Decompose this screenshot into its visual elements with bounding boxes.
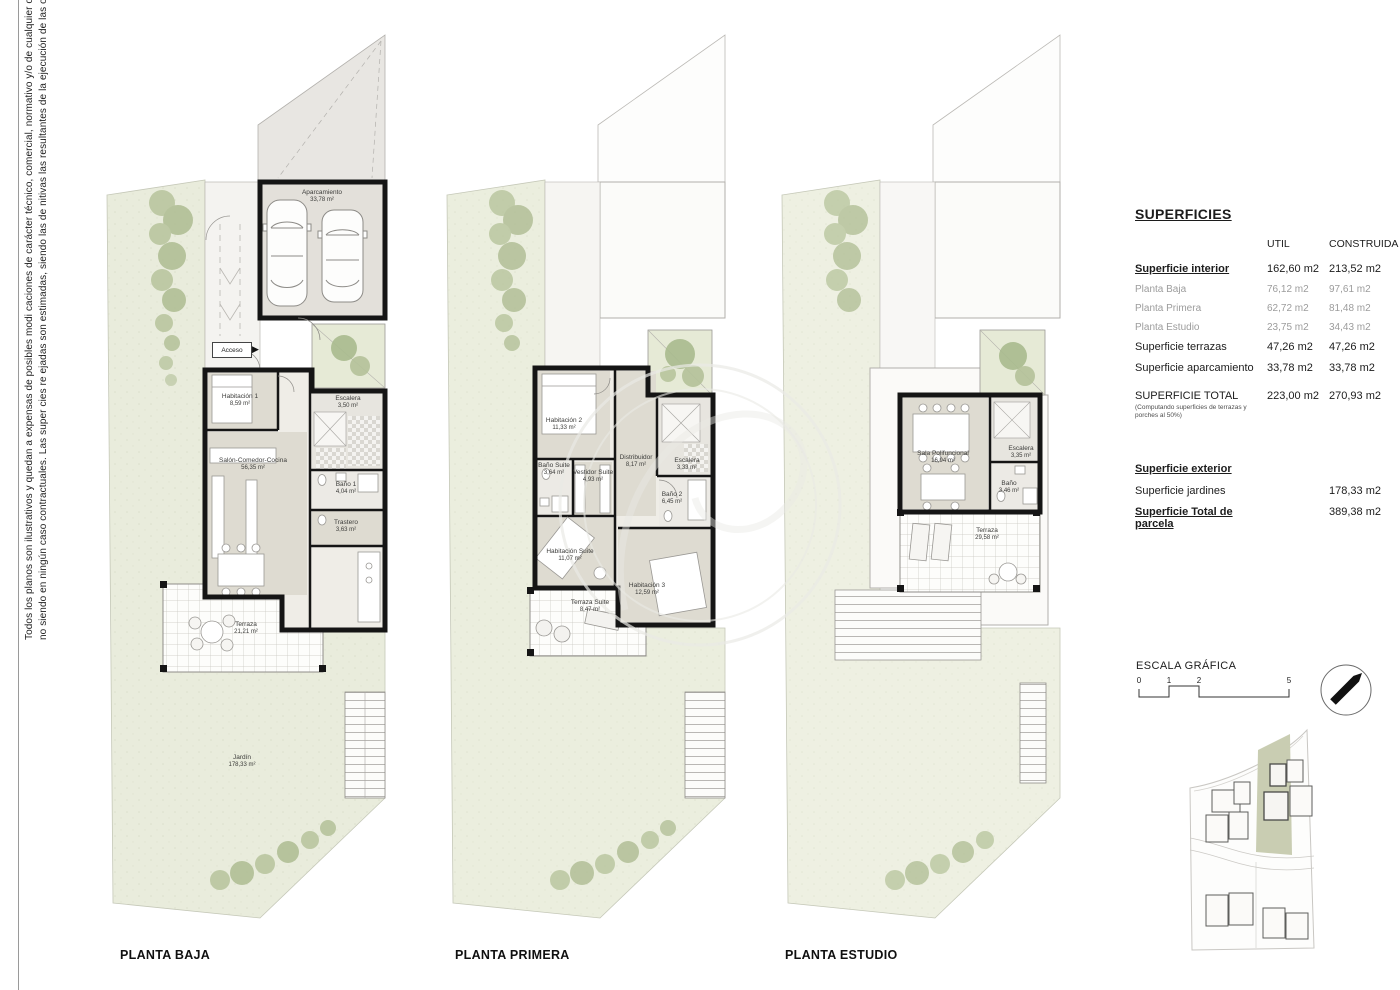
exterior-stairs <box>345 692 385 798</box>
car-2 <box>318 210 367 302</box>
row-superficie-aparcamiento: Superficie aparcamiento 33,78 m2 33,78 m… <box>1135 362 1391 374</box>
graphic-scale-title: ESCALA GRÁFICA <box>1136 660 1306 672</box>
watermark-logo <box>545 360 855 660</box>
scale-tick-5: 5 <box>1287 676 1292 685</box>
disclaimer-line-2: no siendo en ningún caso contractuales. … <box>37 95 51 640</box>
table-header-row: UTIL CONSTRUIDA <box>1135 238 1391 250</box>
car-1 <box>263 200 311 306</box>
floorplan-planta-baja: Aparcamiento33,78 m² Acceso ▶ Habitación… <box>100 28 390 928</box>
sheet-left-border <box>18 0 19 990</box>
acceso-arrow-icon: ▶ <box>252 342 259 356</box>
studio-floor <box>900 395 1040 512</box>
drawing-sheet: Todos los planos son ilustrativos y qued… <box>0 0 1400 990</box>
site-location-plan <box>1186 720 1336 958</box>
row-planta-baja: Planta Baja 76,12 m2 97,61 m2 <box>1135 284 1391 295</box>
acceso-label: Acceso <box>212 342 252 358</box>
deck-slats <box>835 590 981 660</box>
superficies-title: SUPERFICIES <box>1135 206 1391 222</box>
total-label: SUPERFICIE TOTAL <box>1135 390 1238 402</box>
plan-title-planta-baja: PLANTA BAJA <box>120 948 210 962</box>
patio-tree <box>312 324 385 388</box>
column-header-util: UTIL <box>1267 238 1329 250</box>
scale-bar: 0 1 2 5 <box>1136 675 1306 703</box>
planta-baja-drawing <box>100 28 390 928</box>
row-planta-estudio: Planta Estudio 23,75 m2 34,43 m2 <box>1135 322 1391 333</box>
scale-tick-1: 1 <box>1167 676 1172 685</box>
plan-title-planta-estudio: PLANTA ESTUDIO <box>785 948 898 962</box>
row-superficie-total: SUPERFICIE TOTAL (Computando superficies… <box>1135 390 1391 419</box>
superficies-table: SUPERFICIES UTIL CONSTRUIDA Superficie i… <box>1135 206 1391 539</box>
disclaimer-text: Todos los planos son ilustrativos y qued… <box>23 95 50 640</box>
patio-tree <box>980 330 1045 395</box>
row-superficie-terrazas: Superficie terrazas 47,26 m2 47,26 m2 <box>1135 341 1391 353</box>
total-note: (Computando superficies de terrazas y po… <box>1135 404 1253 419</box>
scale-tick-2: 2 <box>1197 676 1202 685</box>
exterior-stairs <box>685 692 725 798</box>
garage <box>260 182 385 318</box>
row-planta-primera: Planta Primera 62,72 m2 81,48 m2 <box>1135 303 1391 314</box>
exterior-stairs <box>1020 683 1046 783</box>
disclaimer-line-1: Todos los planos son ilustrativos y qued… <box>23 95 37 640</box>
terrace-studio <box>897 509 1040 592</box>
context-outlines <box>545 35 725 370</box>
scale-tick-0: 0 <box>1137 676 1142 685</box>
row-superficie-exterior: Superficie exterior <box>1135 463 1391 475</box>
neighbor-access-area <box>258 35 385 182</box>
row-superficie-interior: Superficie interior 162,60 m2 213,52 m2 <box>1135 263 1391 275</box>
column-header-construida: CONSTRUIDA <box>1329 238 1391 250</box>
graphic-scale: ESCALA GRÁFICA 0 1 2 5 <box>1136 660 1306 708</box>
row-superficie-jardines: Superficie jardines 178,33 m2 <box>1135 485 1391 497</box>
north-arrow-icon <box>1318 662 1374 718</box>
plan-title-planta-primera: PLANTA PRIMERA <box>455 948 570 962</box>
row-superficie-parcela: Superficie Total de parcela 389,38 m2 <box>1135 506 1391 530</box>
